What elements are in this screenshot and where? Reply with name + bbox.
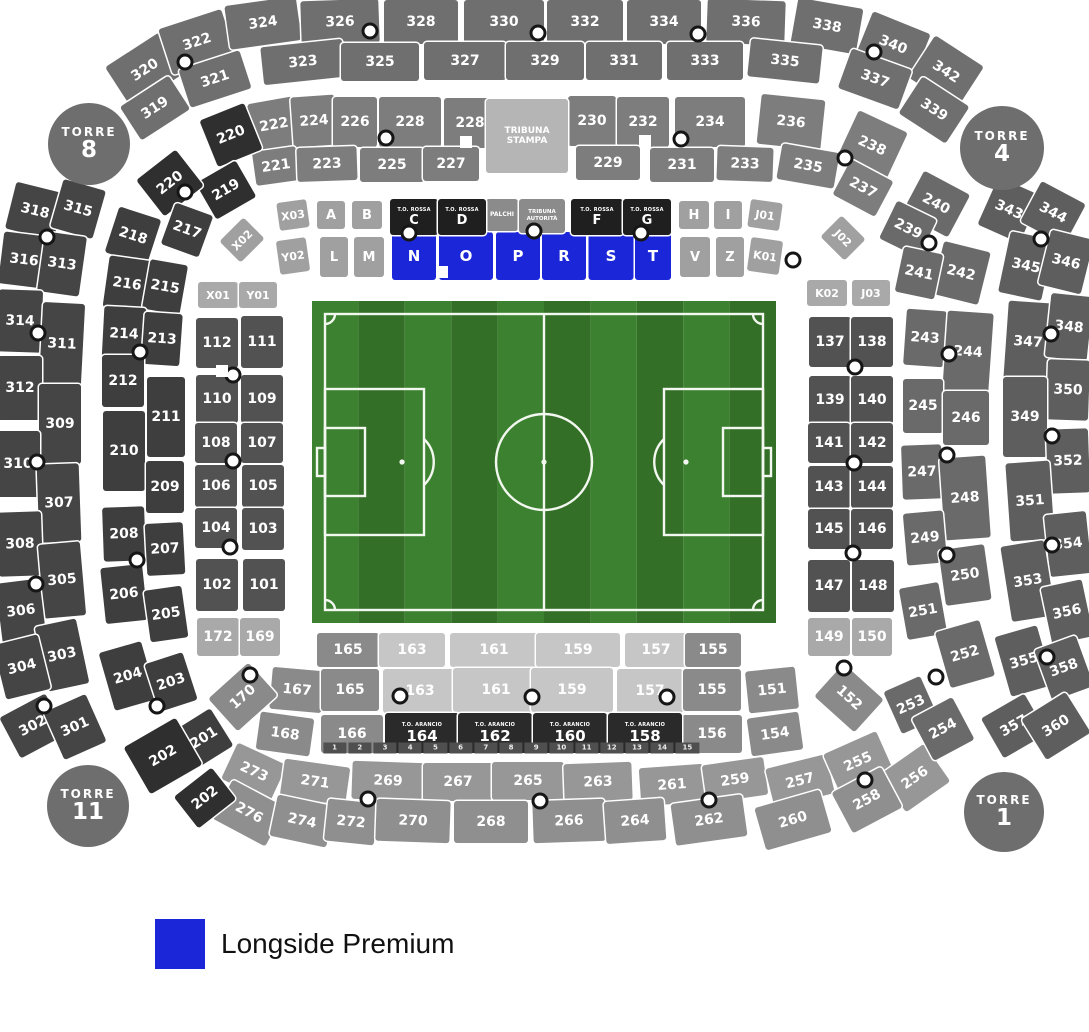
section-140[interactable]: 140: [851, 376, 893, 424]
entrance-marker-icon: [378, 130, 395, 147]
section-109[interactable]: 109: [241, 375, 283, 423]
section-139[interactable]: 139: [809, 376, 851, 424]
section-331[interactable]: 331: [586, 42, 662, 80]
section-169[interactable]: 169: [240, 618, 280, 656]
entrance-marker-icon: [659, 689, 676, 706]
section-309[interactable]: 309: [39, 384, 81, 464]
section-242[interactable]: 242: [931, 241, 991, 305]
section-335[interactable]: 335: [747, 38, 823, 83]
section-336[interactable]: 336: [706, 0, 785, 45]
section-102[interactable]: 102: [196, 559, 238, 611]
section-211[interactable]: 211: [147, 377, 185, 457]
section-360[interactable]: 360: [1021, 692, 1089, 760]
section-270[interactable]: 270: [375, 799, 450, 844]
section-260[interactable]: 260: [754, 789, 831, 850]
section-159[interactable]: 159: [536, 633, 620, 667]
section-Z[interactable]: Z: [716, 237, 744, 277]
section-tribuna-stampa[interactable]: TRIBUNASTAMPA: [486, 99, 568, 173]
entrance-marker-icon: [847, 359, 864, 376]
entrance-marker-icon: [837, 150, 854, 167]
section-172[interactable]: 172: [197, 618, 239, 656]
seat-row-number: 8: [499, 742, 522, 753]
section-137[interactable]: 137: [809, 317, 851, 367]
section-247[interactable]: 247: [901, 444, 943, 499]
section-101[interactable]: 101: [243, 559, 285, 611]
section-264[interactable]: 264: [604, 798, 667, 844]
section-246[interactable]: 246: [943, 391, 989, 445]
section-230[interactable]: 230: [568, 96, 616, 146]
pitch: [312, 301, 776, 623]
section-233[interactable]: 233: [716, 146, 773, 182]
section-103[interactable]: 103: [242, 508, 284, 550]
section-X01[interactable]: X01: [198, 282, 238, 308]
section-106[interactable]: 106: [195, 465, 237, 507]
section-212[interactable]: 212: [102, 355, 144, 407]
section-209[interactable]: 209: [146, 461, 184, 513]
entrance-marker-icon: [1043, 326, 1060, 343]
entrance-marker-icon: [1039, 649, 1056, 666]
section-I[interactable]: I: [714, 201, 742, 229]
section-223[interactable]: 223: [296, 146, 357, 182]
section-112[interactable]: 112: [196, 318, 238, 368]
seat-row-number: 15: [676, 742, 699, 753]
section-144[interactable]: 144: [851, 466, 893, 508]
section-225[interactable]: 225: [360, 148, 424, 182]
legend-swatch: [155, 919, 205, 969]
section-301[interactable]: 301: [43, 694, 106, 760]
entrance-marker-icon: [132, 344, 149, 361]
section-146[interactable]: 146: [851, 509, 893, 549]
legend: Longside Premium: [155, 919, 454, 969]
section-J02[interactable]: J02: [820, 215, 865, 260]
section-315[interactable]: 315: [50, 179, 106, 239]
section-163[interactable]: 163: [379, 633, 445, 667]
tower-4: TORRE4: [960, 106, 1044, 190]
entrance-marker-icon: [836, 660, 853, 677]
gate-marker-icon: [639, 135, 651, 147]
entrance-marker-icon: [939, 447, 956, 464]
stadium-map: 3203223243263283303323343363383403423193…: [0, 0, 1089, 1032]
entrance-marker-icon: [939, 547, 956, 564]
seat-row-number: 1: [323, 742, 346, 753]
entrance-marker-icon: [690, 26, 707, 43]
section-Y01[interactable]: Y01: [239, 282, 277, 308]
section-210[interactable]: 210: [103, 411, 145, 491]
section-224[interactable]: 224: [290, 95, 337, 148]
entrance-marker-icon: [177, 54, 194, 71]
entrance-marker-icon: [785, 252, 802, 269]
legend-label: Longside Premium: [221, 928, 454, 960]
section-226[interactable]: 226: [333, 97, 377, 147]
section-243[interactable]: 243: [903, 309, 947, 368]
entrance-marker-icon: [524, 689, 541, 706]
section-324[interactable]: 324: [224, 0, 301, 50]
section-349[interactable]: 349: [1003, 377, 1047, 457]
gate-marker-icon: [216, 365, 228, 377]
section-168[interactable]: 168: [256, 711, 315, 756]
section-X03[interactable]: X03: [276, 199, 310, 231]
gate-marker-icon: [460, 136, 472, 148]
seat-row-number: 14: [651, 742, 674, 753]
seat-row-number: 7: [474, 742, 497, 753]
entrance-marker-icon: [392, 688, 409, 705]
section-141[interactable]: 141: [808, 423, 850, 463]
section-148[interactable]: 148: [852, 560, 894, 612]
section-332[interactable]: 332: [547, 0, 623, 44]
entrance-marker-icon: [941, 346, 958, 363]
section-235[interactable]: 235: [776, 143, 839, 189]
section-X02[interactable]: X02: [219, 217, 264, 262]
section-PALCHI[interactable]: PALCHI: [486, 199, 518, 231]
seat-row-number: 12: [600, 742, 623, 753]
seat-row-number: 3: [373, 742, 396, 753]
entrance-marker-icon: [1033, 231, 1050, 248]
tower-11: TORRE11: [47, 765, 129, 847]
section-L[interactable]: L: [320, 237, 348, 277]
section-149[interactable]: 149: [808, 618, 850, 656]
section-H[interactable]: H: [679, 201, 709, 229]
entrance-marker-icon: [225, 453, 242, 470]
section-325[interactable]: 325: [341, 43, 419, 81]
section-165[interactable]: 165: [321, 669, 379, 711]
section-145[interactable]: 145: [808, 509, 850, 549]
section-150[interactable]: 150: [852, 618, 892, 656]
entrance-marker-icon: [30, 325, 47, 342]
section-167[interactable]: 167: [269, 667, 324, 713]
section-A[interactable]: A: [317, 201, 345, 229]
section-S[interactable]: S: [589, 232, 634, 280]
entrance-marker-icon: [29, 454, 46, 471]
section-D[interactable]: T.O. ROSSAD: [438, 199, 486, 235]
entrance-marker-icon: [846, 455, 863, 472]
entrance-marker-icon: [673, 131, 690, 148]
entrance-marker-icon: [530, 25, 547, 42]
section-B[interactable]: B: [352, 201, 382, 229]
entrance-marker-icon: [362, 23, 379, 40]
section-207[interactable]: 207: [145, 522, 186, 576]
seat-row-number: 9: [525, 742, 548, 753]
entrance-marker-icon: [222, 539, 239, 556]
section-154[interactable]: 154: [747, 712, 804, 757]
seat-row-number: 4: [399, 742, 422, 753]
section-111[interactable]: 111: [241, 316, 283, 368]
section-221[interactable]: 221: [252, 146, 300, 186]
section-213[interactable]: 213: [141, 312, 183, 367]
section-143[interactable]: 143: [808, 466, 850, 508]
entrance-marker-icon: [845, 545, 862, 562]
section-263[interactable]: 263: [563, 762, 632, 802]
entrance-marker-icon: [633, 225, 650, 242]
tower-1: TORRE1: [964, 772, 1044, 852]
section-F[interactable]: T.O. ROSSAF: [571, 199, 623, 235]
section-K01[interactable]: K01: [747, 237, 783, 275]
section-328[interactable]: 328: [384, 0, 458, 44]
section-227[interactable]: 227: [423, 147, 479, 181]
gate-marker-icon: [436, 266, 448, 278]
section-305[interactable]: 305: [38, 541, 86, 618]
entrance-marker-icon: [701, 792, 718, 809]
entrance-marker-icon: [928, 669, 945, 686]
section-229[interactable]: 229: [576, 146, 640, 180]
section-J03[interactable]: J03: [852, 280, 890, 306]
section-356[interactable]: 356: [1040, 579, 1089, 644]
section-314[interactable]: 314: [0, 289, 43, 352]
section-265[interactable]: 265: [492, 762, 564, 800]
section-165[interactable]: 165: [317, 633, 379, 667]
section-312[interactable]: 312: [0, 356, 42, 420]
section-307[interactable]: 307: [37, 463, 82, 542]
section-J01[interactable]: J01: [747, 199, 783, 231]
section-245[interactable]: 245: [903, 379, 943, 433]
entrance-marker-icon: [242, 667, 259, 684]
section-V[interactable]: V: [680, 237, 710, 277]
entrance-marker-icon: [28, 576, 45, 593]
section-Y02[interactable]: Y02: [276, 237, 310, 275]
seat-row-number: 5: [424, 742, 447, 753]
section-R[interactable]: R: [542, 232, 586, 280]
seat-row-number: 13: [625, 742, 648, 753]
section-215[interactable]: 215: [142, 259, 188, 315]
section-105[interactable]: 105: [242, 465, 284, 507]
section-350[interactable]: 350: [1046, 359, 1089, 420]
tower-8: TORRE8: [48, 103, 130, 185]
section-157[interactable]: 157: [625, 633, 687, 667]
section-205[interactable]: 205: [144, 586, 189, 643]
entrance-marker-icon: [401, 225, 418, 242]
entrance-marker-icon: [149, 698, 166, 715]
section-327[interactable]: 327: [424, 42, 506, 80]
section-159[interactable]: 159: [531, 668, 613, 712]
seat-row-number: 10: [550, 742, 573, 753]
section-231[interactable]: 231: [650, 148, 714, 182]
entrance-marker-icon: [129, 552, 146, 569]
entrance-marker-icon: [866, 44, 883, 61]
entrance-marker-icon: [1044, 428, 1061, 445]
section-236[interactable]: 236: [757, 94, 826, 150]
entrance-marker-icon: [526, 223, 543, 240]
section-155[interactable]: 155: [683, 669, 741, 711]
section-311[interactable]: 311: [39, 302, 85, 386]
seat-row-number: 11: [575, 742, 598, 753]
section-220[interactable]: 220: [136, 149, 204, 216]
section-267[interactable]: 267: [423, 763, 493, 801]
section-329[interactable]: 329: [506, 42, 584, 80]
section-M[interactable]: M: [354, 237, 384, 277]
section-147[interactable]: 147: [808, 560, 850, 612]
entrance-marker-icon: [36, 698, 53, 715]
entrance-marker-icon: [921, 235, 938, 252]
section-248[interactable]: 248: [939, 455, 991, 540]
section-206[interactable]: 206: [100, 564, 148, 624]
section-151[interactable]: 151: [745, 667, 799, 714]
entrance-marker-icon: [360, 791, 377, 808]
section-323[interactable]: 323: [260, 39, 346, 85]
section-155[interactable]: 155: [685, 633, 741, 667]
section-333[interactable]: 333: [667, 42, 743, 80]
section-219[interactable]: 219: [196, 160, 257, 219]
entrance-marker-icon: [532, 793, 549, 810]
entrance-marker-icon: [177, 184, 194, 201]
section-161[interactable]: 161: [450, 633, 538, 667]
seat-row-number: 2: [348, 742, 371, 753]
seat-row-number: 6: [449, 742, 472, 753]
section-268[interactable]: 268: [454, 801, 528, 843]
section-107[interactable]: 107: [241, 423, 283, 463]
entrance-marker-icon: [39, 229, 56, 246]
entrance-marker-icon: [1044, 537, 1061, 554]
entrance-marker-icon: [857, 772, 874, 789]
section-308[interactable]: 308: [0, 511, 43, 576]
section-K02[interactable]: K02: [807, 280, 847, 306]
